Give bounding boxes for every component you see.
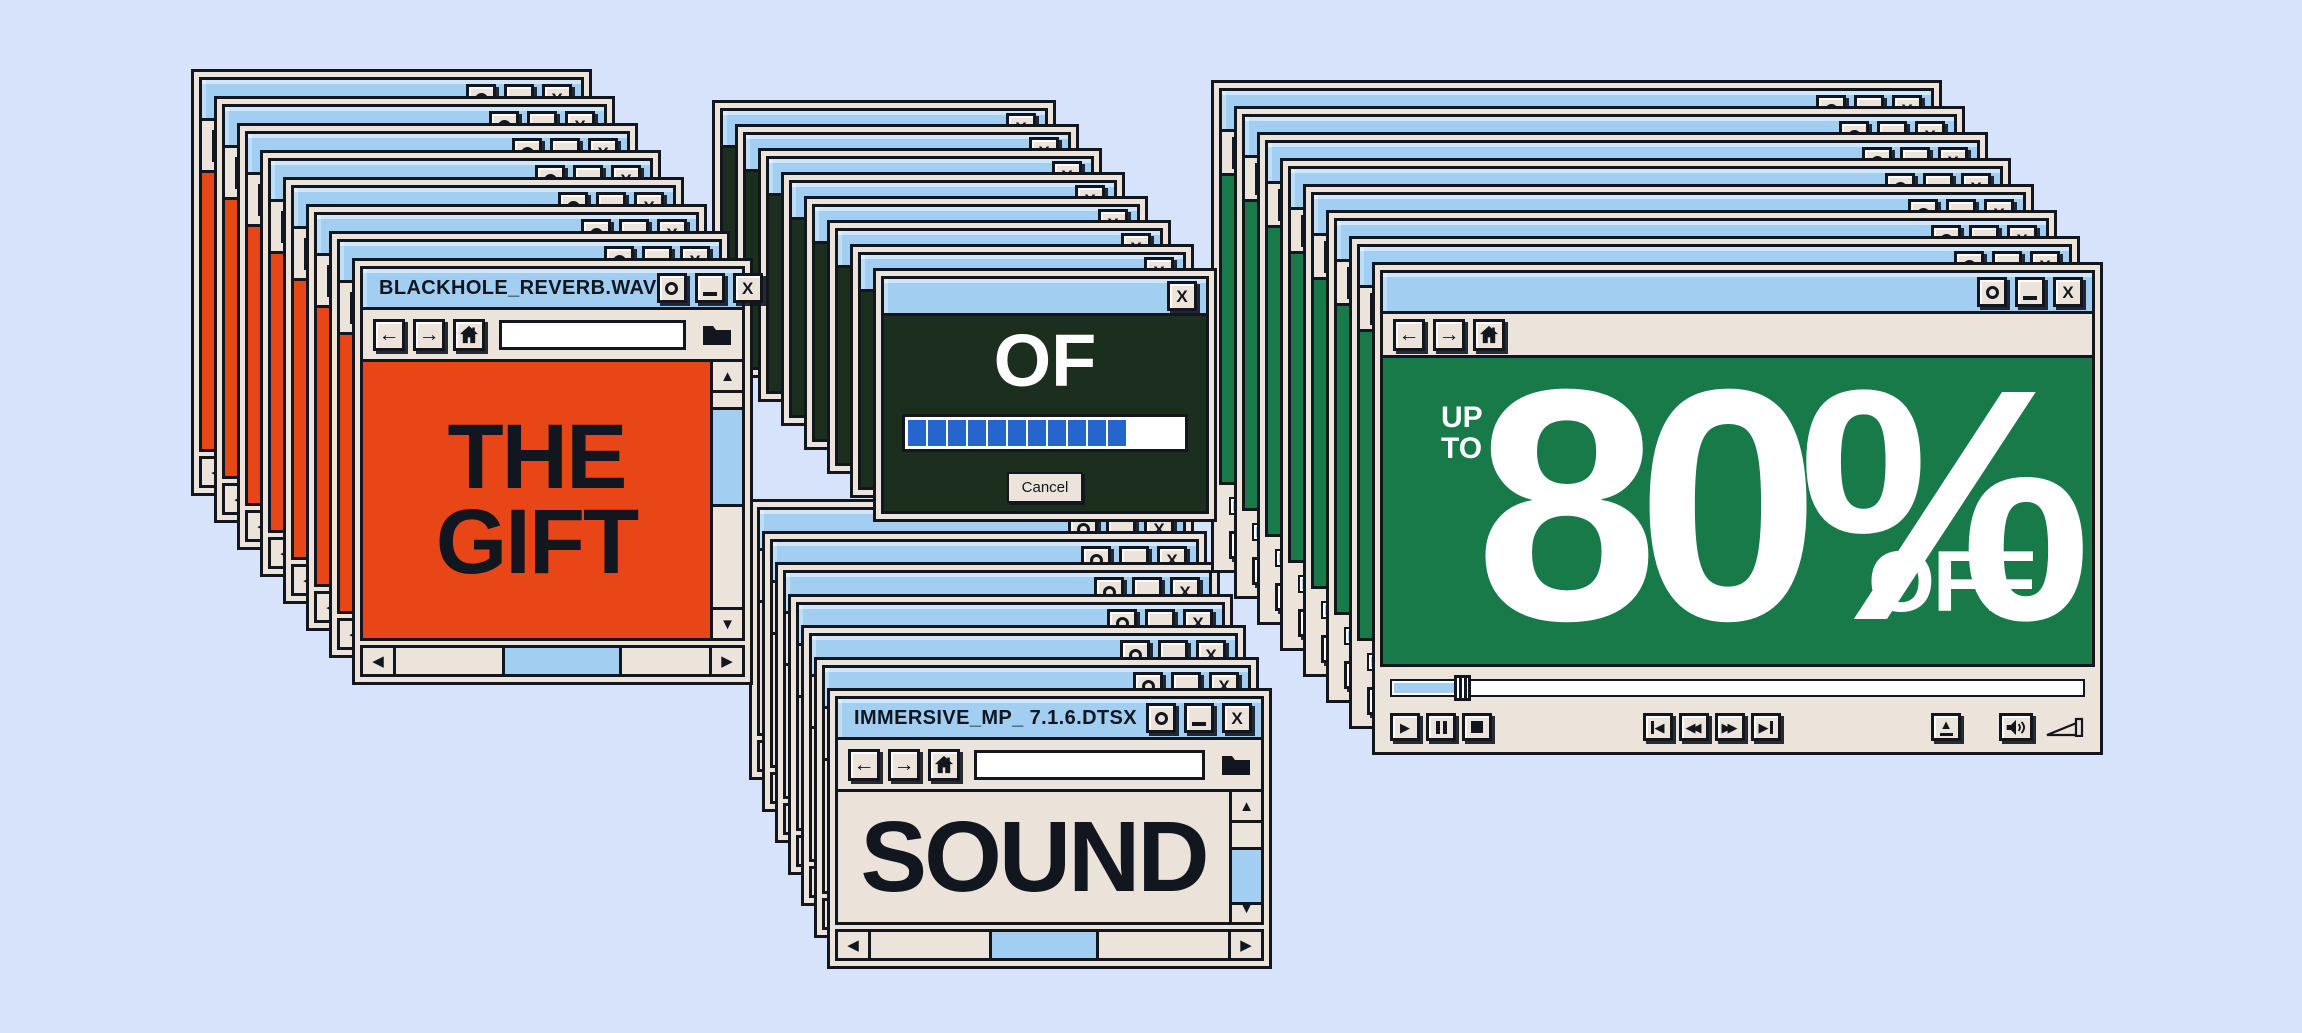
rewind-icon: ◀◀ — [1686, 721, 1702, 734]
titlebar[interactable]: IMMERSIVE_MP_ 7.1.6.DTSX X — [835, 696, 1264, 740]
stop-icon — [1471, 721, 1483, 733]
horizontal-scrollbar[interactable]: ◀ ▶ — [360, 645, 745, 677]
close-icon: X — [2062, 284, 2073, 301]
skip-start-button[interactable]: ◀ — [1643, 713, 1673, 741]
minimize-button[interactable] — [2015, 277, 2045, 307]
toolbar: ← → — [1380, 314, 2095, 358]
skip-end-icon: ▶ — [1759, 721, 1769, 734]
maximize-button[interactable] — [657, 273, 687, 303]
fast-forward-button[interactable]: ▶▶ — [1715, 713, 1745, 741]
rewind-button[interactable]: ◀◀ — [1679, 713, 1709, 741]
media-controls: ▶ ◀ ◀◀ ▶▶ ▶ ▲ — [1380, 667, 2095, 747]
scroll-down-button[interactable]: ▼ — [713, 607, 742, 638]
scroll-left-button[interactable]: ◀ — [363, 648, 396, 674]
window-title: IMMERSIVE_MP_ 7.1.6.DTSX — [854, 707, 1137, 730]
headline-of: OF — [884, 324, 1206, 398]
scroll-left-button[interactable]: ◀ — [838, 932, 871, 958]
home-button[interactable] — [453, 319, 485, 351]
fast-forward-icon: ▶▶ — [1722, 721, 1738, 734]
seek-fill — [1394, 683, 1456, 693]
seek-handle[interactable] — [1454, 675, 1471, 701]
skip-start-icon: ◀ — [1655, 721, 1665, 734]
scroll-right-button[interactable]: ▶ — [709, 648, 742, 674]
window-of-progress-dialog[interactable]: X OF Cancel — [873, 268, 1217, 522]
eject-icon: ▲ — [1940, 718, 1953, 736]
close-icon: X — [742, 280, 753, 297]
horizontal-scroll-thumb[interactable] — [989, 932, 1099, 958]
close-button[interactable]: X — [2053, 277, 2083, 307]
address-input[interactable] — [974, 750, 1205, 780]
titlebar[interactable]: X — [881, 276, 1209, 316]
pause-icon — [1436, 721, 1447, 734]
close-button[interactable]: X — [1167, 281, 1197, 311]
play-button[interactable]: ▶ — [1390, 713, 1420, 741]
progress-bar — [902, 414, 1188, 452]
minimize-icon — [703, 292, 717, 296]
window-deal-player[interactable]: X ← → UP TO 80% OFF ▶ — [1372, 262, 2103, 755]
close-icon: X — [1231, 710, 1242, 727]
forward-button[interactable]: → — [413, 319, 445, 351]
home-button[interactable] — [1473, 319, 1505, 351]
folder-icon[interactable] — [702, 323, 732, 346]
vertical-scrollbar[interactable]: ▲ ▼ — [710, 362, 742, 638]
minimize-icon — [2023, 296, 2037, 300]
vertical-scroll-thumb[interactable] — [713, 407, 742, 507]
titlebar[interactable]: X — [1380, 270, 2095, 314]
window-immersive-sound[interactable]: IMMERSIVE_MP_ 7.1.6.DTSX X ← → SOUND ▲ ▼ — [827, 688, 1272, 969]
toolbar: ← → — [360, 310, 745, 362]
window-blackhole-reverb[interactable]: BLACKHOLE_REVERB.WAV X ← → THE GIFT ▲ — [352, 258, 753, 685]
maximize-button[interactable] — [1146, 703, 1176, 733]
close-button[interactable]: X — [733, 273, 763, 303]
pause-button[interactable] — [1426, 713, 1456, 741]
titlebar[interactable]: BLACKHOLE_REVERB.WAV X — [360, 266, 745, 310]
maximize-icon — [665, 282, 678, 295]
vertical-scroll-thumb[interactable] — [1232, 847, 1261, 905]
back-button[interactable]: ← — [1393, 319, 1425, 351]
forward-button[interactable]: → — [1433, 319, 1465, 351]
seek-bar[interactable] — [1390, 679, 2085, 697]
deal-artwork: UP TO 80% OFF — [1383, 358, 2092, 664]
back-button[interactable]: ← — [373, 319, 405, 351]
maximize-button[interactable] — [1977, 277, 2007, 307]
toolbar: ← → — [835, 740, 1264, 792]
close-icon: X — [1176, 288, 1187, 305]
minimize-icon — [1192, 722, 1206, 726]
minimize-button[interactable] — [695, 273, 725, 303]
maximize-icon — [1155, 712, 1168, 725]
volume-button[interactable] — [1999, 713, 2033, 741]
home-button[interactable] — [928, 749, 960, 781]
sound-artwork: SOUND — [838, 792, 1229, 922]
artwork-canvas: X ← → ▲ ▼ ◀ ▶ ▶ — [0, 0, 2302, 1033]
eject-button[interactable]: ▲ — [1931, 713, 1961, 741]
window-title: BLACKHOLE_REVERB.WAV — [379, 277, 657, 300]
minimize-button[interactable] — [1184, 703, 1214, 733]
close-button[interactable]: X — [1222, 703, 1252, 733]
scroll-up-button[interactable]: ▲ — [713, 362, 742, 393]
scroll-up-button[interactable]: ▲ — [1232, 792, 1261, 823]
progress-segments — [908, 420, 1126, 446]
back-button[interactable]: ← — [848, 749, 880, 781]
maximize-icon — [1986, 286, 1999, 299]
headline-sound: SOUND — [860, 800, 1206, 915]
scroll-right-button[interactable]: ▶ — [1228, 932, 1261, 958]
volume-slider[interactable] — [2045, 717, 2085, 737]
speaker-icon — [2005, 718, 2027, 737]
forward-button[interactable]: → — [888, 749, 920, 781]
of-artwork: OF Cancel — [884, 316, 1206, 511]
play-icon: ▶ — [1400, 721, 1410, 734]
gift-artwork: THE GIFT — [363, 362, 710, 638]
headline-the-gift: THE GIFT — [436, 415, 638, 584]
horizontal-scrollbar[interactable]: ◀ ▶ — [835, 929, 1264, 961]
label-off: OFF — [1868, 533, 2034, 632]
folder-icon[interactable] — [1221, 753, 1251, 776]
cancel-button[interactable]: Cancel — [1007, 472, 1083, 503]
vertical-scrollbar[interactable]: ▲ ▼ — [1229, 792, 1261, 922]
stop-button[interactable] — [1462, 713, 1492, 741]
address-input[interactable] — [499, 320, 686, 350]
skip-end-button[interactable]: ▶ — [1751, 713, 1781, 741]
horizontal-scroll-thumb[interactable] — [502, 648, 622, 674]
